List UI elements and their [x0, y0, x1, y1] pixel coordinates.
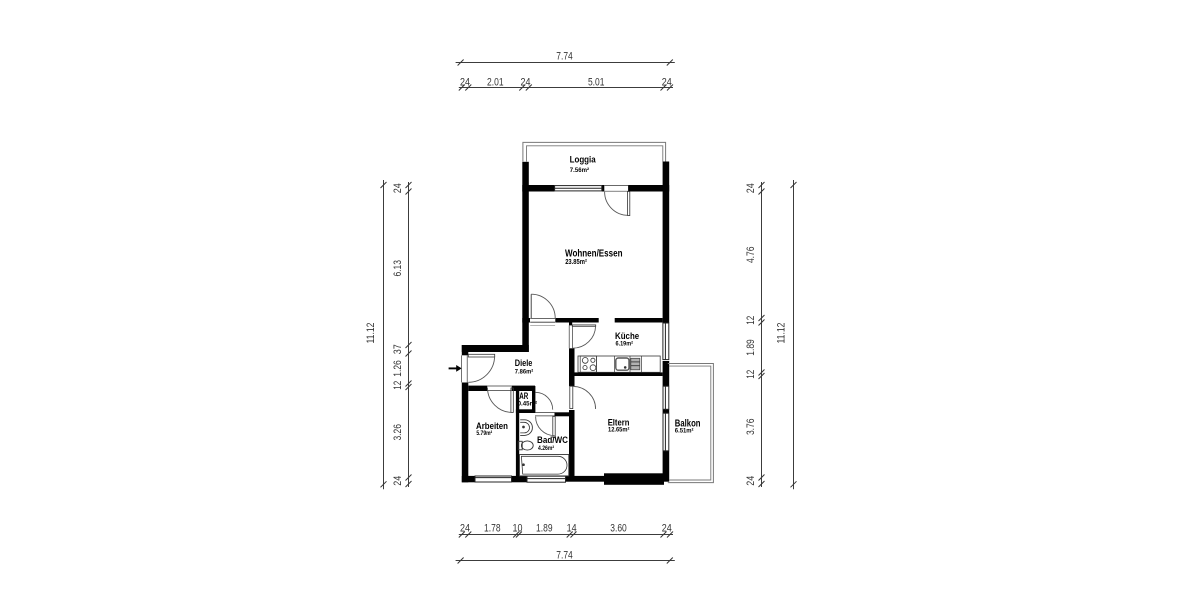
svg-text:4.76: 4.76 [745, 247, 757, 263]
svg-text:12: 12 [745, 316, 757, 325]
svg-text:10: 10 [513, 522, 523, 534]
svg-text:23.85m²: 23.85m² [565, 257, 587, 266]
svg-text:3.26: 3.26 [392, 424, 404, 441]
svg-text:1.26: 1.26 [392, 360, 404, 377]
svg-text:7.74: 7.74 [556, 50, 573, 62]
svg-text:24: 24 [662, 76, 672, 88]
svg-text:1.89: 1.89 [536, 522, 553, 534]
svg-text:6.19m²: 6.19m² [616, 341, 634, 348]
svg-text:Diele: Diele [515, 358, 533, 368]
svg-text:24: 24 [392, 183, 404, 193]
svg-text:1.89: 1.89 [745, 339, 757, 356]
svg-text:6.51m²: 6.51m² [675, 428, 694, 435]
svg-text:12: 12 [392, 381, 404, 390]
svg-text:6.13: 6.13 [392, 260, 404, 277]
svg-text:24: 24 [392, 476, 404, 486]
svg-text:37: 37 [392, 344, 404, 354]
svg-text:1.78: 1.78 [484, 522, 501, 534]
svg-text:24: 24 [745, 183, 757, 193]
svg-text:5.79m²: 5.79m² [476, 430, 492, 437]
svg-text:14: 14 [567, 522, 577, 534]
svg-text:24: 24 [460, 522, 470, 534]
svg-text:24: 24 [460, 76, 470, 88]
svg-text:24: 24 [745, 476, 757, 486]
svg-text:12.65m²: 12.65m² [608, 426, 630, 433]
svg-text:AR: AR [519, 391, 528, 401]
svg-text:11.12: 11.12 [365, 323, 377, 344]
svg-text:7.74: 7.74 [556, 550, 573, 562]
svg-text:24: 24 [662, 522, 672, 534]
svg-text:7.86m²: 7.86m² [515, 368, 534, 375]
svg-text:11.12: 11.12 [775, 323, 787, 344]
svg-text:3.60: 3.60 [610, 522, 627, 534]
svg-text:5.01: 5.01 [588, 76, 605, 88]
svg-text:24: 24 [521, 76, 531, 88]
svg-text:12: 12 [745, 370, 757, 379]
svg-text:Bad/WC: Bad/WC [537, 435, 568, 445]
svg-text:3.76: 3.76 [745, 419, 757, 436]
svg-text:Loggia: Loggia [570, 155, 597, 165]
svg-text:0.45m²: 0.45m² [518, 401, 538, 408]
svg-text:7.56m²: 7.56m² [570, 167, 590, 174]
svg-text:4.26m²: 4.26m² [538, 445, 554, 452]
svg-text:2.01: 2.01 [487, 76, 504, 88]
